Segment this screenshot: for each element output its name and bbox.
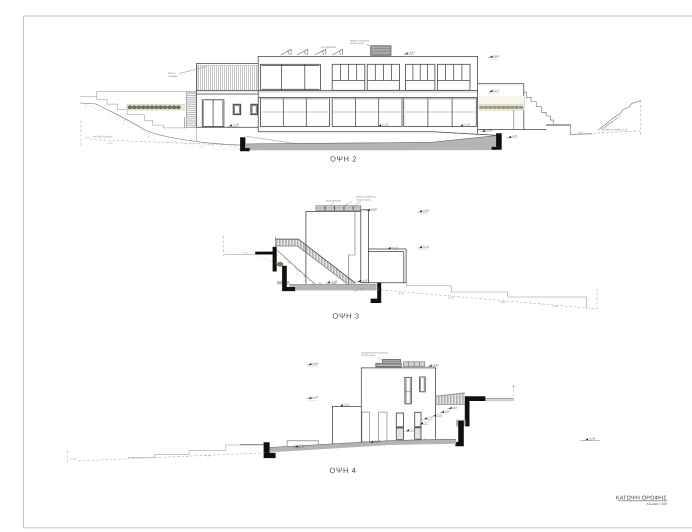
svg-text:+8.50: +8.50 <box>493 55 500 58</box>
svg-text:-1.70: -1.70 <box>242 252 248 255</box>
svg-text:+4.10: +4.10 <box>391 246 398 249</box>
svg-text:+0.90: +0.90 <box>589 438 596 441</box>
svg-text:-0.90: -0.90 <box>500 301 506 304</box>
svg-text:ζεστού νερού: ζεστού νερού <box>350 42 365 45</box>
svg-text:+8.50: +8.50 <box>423 209 430 212</box>
svg-text:ΟΨΗ 2: ΟΨΗ 2 <box>330 155 357 164</box>
svg-text:+6.10: +6.10 <box>312 396 319 399</box>
svg-text:-1.70: -1.70 <box>71 458 77 461</box>
svg-text:περσίδες: περσίδες <box>168 75 178 78</box>
svg-text:-0.70: -0.70 <box>205 455 211 458</box>
svg-text:+3.1: +3.1 <box>452 406 458 409</box>
svg-text:+2.3: +2.3 <box>437 414 443 417</box>
svg-text:+1.4: +1.4 <box>410 429 416 432</box>
svg-text:ΟΨΗ 4: ΟΨΗ 4 <box>330 466 357 475</box>
svg-text:+2.7: +2.7 <box>445 410 451 413</box>
svg-text:Φωτοβολταϊκά: Φωτοβολταϊκά <box>321 46 337 49</box>
svg-text:+1.35: +1.35 <box>233 124 240 127</box>
svg-text:+8.50: +8.50 <box>408 52 415 55</box>
svg-text:+4.10: +4.10 <box>344 404 351 407</box>
svg-text:+8.00: +8.00 <box>371 208 378 211</box>
svg-text:ΦΥΣΙΚΟ ΕΔΑΦΟΣ: ΦΥΣΙΚΟ ΕΔΑΦΟΣ <box>93 136 113 139</box>
svg-text:+1.35: +1.35 <box>361 279 368 282</box>
svg-text:-0.40: -0.40 <box>299 445 305 448</box>
svg-text:+2.0: +2.0 <box>428 417 434 420</box>
svg-text:+1.35: +1.35 <box>331 280 338 283</box>
svg-text:-0.70: -0.70 <box>512 135 518 138</box>
svg-text:ζεστού νερού: ζεστού νερού <box>361 354 376 357</box>
svg-text:-0.70: -0.70 <box>357 289 363 292</box>
svg-text:ΟΨΗ 3: ΟΨΗ 3 <box>333 312 360 321</box>
svg-text:+4.10: +4.10 <box>423 245 430 248</box>
svg-text:ΦΥΣΙΚΟ ΕΔΑΦΟΣ -0.70: ΦΥΣΙΚΟ ΕΔΑΦΟΣ -0.70 <box>602 129 628 132</box>
svg-text:-1.10: -1.10 <box>552 305 558 308</box>
svg-text:ζεστού νερού: ζεστού νερού <box>357 198 372 201</box>
svg-text:+0.70: +0.70 <box>374 440 381 443</box>
svg-text:-0.70: -0.70 <box>398 292 404 295</box>
svg-text:Κλίμακα 1:100: Κλίμακα 1:100 <box>647 502 668 506</box>
svg-text:+8.50: +8.50 <box>312 362 319 365</box>
svg-text:-1.70: -1.70 <box>107 142 113 145</box>
svg-text:-0.70: -0.70 <box>578 132 584 135</box>
svg-text:+1.35: +1.35 <box>486 129 493 132</box>
svg-text:-1.70: -1.70 <box>84 136 90 139</box>
svg-text:+1.35: +1.35 <box>464 124 471 127</box>
svg-text:+1.35: +1.35 <box>382 124 389 127</box>
svg-text:+1.7: +1.7 <box>424 422 430 425</box>
svg-text:-0.70: -0.70 <box>448 297 454 300</box>
svg-text:+6.10: +6.10 <box>493 89 500 92</box>
svg-text:+8.50: +8.50 <box>432 364 439 367</box>
